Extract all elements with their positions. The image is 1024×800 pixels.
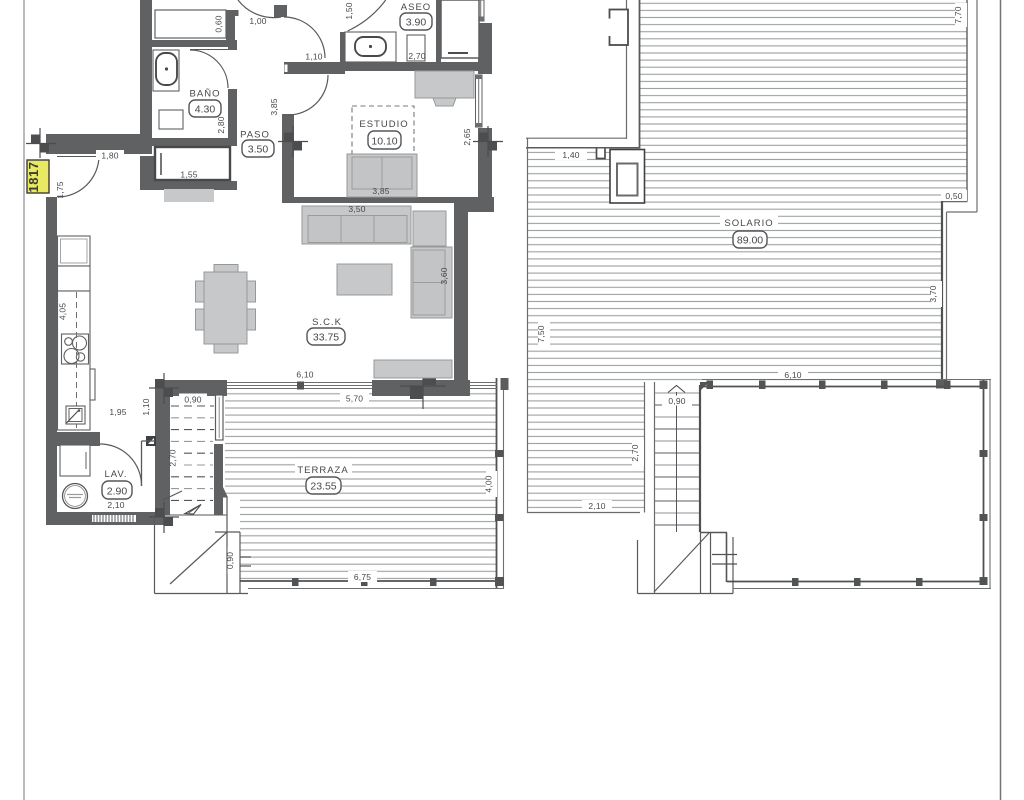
svg-text:7,50: 7,50 [536, 325, 546, 342]
svg-text:3.50: 3.50 [248, 144, 269, 156]
svg-text:1,95: 1,95 [109, 407, 126, 417]
svg-text:3,85: 3,85 [269, 98, 279, 115]
svg-text:0,60: 0,60 [214, 15, 224, 32]
svg-text:2,65: 2,65 [462, 128, 472, 145]
svg-text:3,85: 3,85 [372, 186, 389, 196]
svg-text:7,70: 7,70 [953, 6, 963, 23]
svg-text:ESTUDIO: ESTUDIO [359, 119, 408, 130]
svg-text:1817: 1817 [26, 162, 41, 193]
svg-text:0,90: 0,90 [225, 552, 235, 569]
svg-text:3.90: 3.90 [406, 17, 427, 29]
svg-text:2,80: 2,80 [216, 116, 226, 133]
svg-text:0,90: 0,90 [668, 396, 685, 406]
svg-text:3,50: 3,50 [348, 204, 365, 214]
svg-text:BAÑO: BAÑO [190, 89, 221, 100]
svg-text:89.00: 89.00 [737, 235, 763, 247]
svg-text:6,10: 6,10 [784, 370, 801, 380]
svg-text:3,70: 3,70 [928, 285, 938, 302]
svg-text:2,70: 2,70 [630, 444, 640, 461]
svg-text:5,70: 5,70 [346, 394, 363, 404]
svg-text:PASO: PASO [240, 130, 270, 141]
svg-text:1,50: 1,50 [344, 2, 354, 19]
svg-text:0,90: 0,90 [184, 395, 201, 405]
svg-text:4,05: 4,05 [58, 303, 68, 320]
svg-text:LAV.: LAV. [104, 469, 127, 480]
svg-text:4.30: 4.30 [195, 104, 216, 116]
svg-text:6,10: 6,10 [296, 370, 313, 380]
svg-text:2,10: 2,10 [588, 501, 605, 511]
svg-text:3,60: 3,60 [439, 267, 449, 284]
svg-text:1,10: 1,10 [141, 398, 151, 415]
svg-text:0,50: 0,50 [945, 191, 962, 201]
svg-text:1,10: 1,10 [305, 52, 322, 62]
svg-text:2,10: 2,10 [107, 500, 124, 510]
svg-text:1,80: 1,80 [101, 151, 118, 161]
svg-text:TERRAZA: TERRAZA [297, 465, 348, 476]
svg-text:23.55: 23.55 [310, 481, 336, 493]
svg-text:10.10: 10.10 [371, 136, 397, 148]
svg-text:2,70: 2,70 [408, 51, 425, 61]
svg-text:1,00: 1,00 [249, 16, 266, 26]
svg-text:33.75: 33.75 [313, 332, 339, 344]
svg-text:ASEO: ASEO [401, 2, 431, 13]
svg-text:2,70: 2,70 [168, 449, 178, 466]
svg-text:1,55: 1,55 [180, 170, 197, 180]
svg-text:S.C.K: S.C.K [312, 317, 342, 328]
svg-text:1,75: 1,75 [55, 181, 65, 198]
svg-text:SOLARIO: SOLARIO [724, 218, 773, 229]
svg-text:6,75: 6,75 [354, 572, 371, 582]
svg-text:4,00: 4,00 [484, 475, 494, 492]
svg-text:2.90: 2.90 [107, 486, 128, 498]
svg-text:1,40: 1,40 [562, 150, 579, 160]
